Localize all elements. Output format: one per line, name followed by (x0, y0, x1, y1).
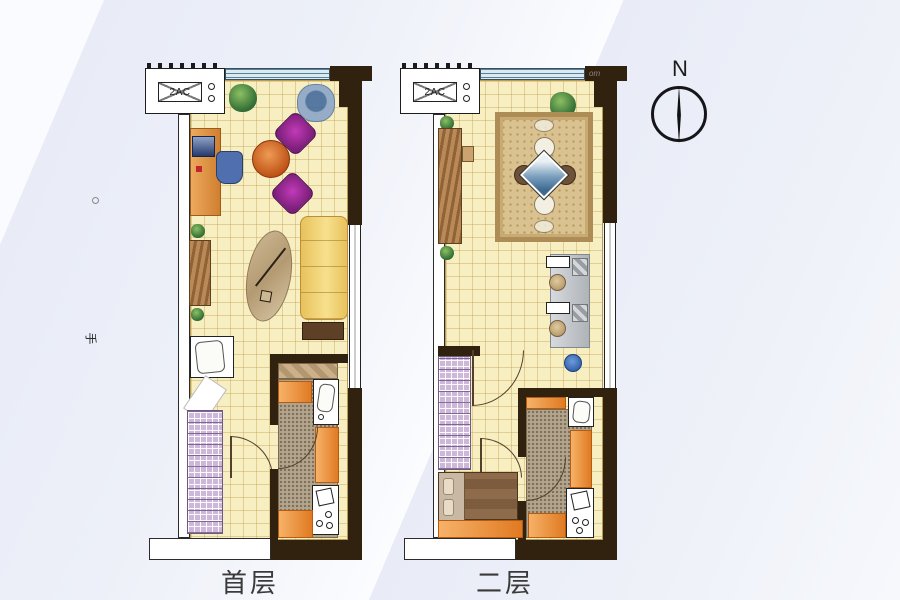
potted-plant-icon (229, 84, 257, 112)
bath-top-wall (518, 388, 603, 397)
low-cabinet (438, 520, 523, 538)
ac-unit-symbol: 2AC (413, 82, 457, 102)
ac-knob (208, 83, 215, 90)
ac-platform: 2AC (400, 68, 480, 114)
bed (438, 472, 518, 520)
bath-left-wall (518, 397, 526, 457)
lamp-base (260, 290, 273, 303)
ac-platform: 2AC (145, 68, 225, 114)
bath-left-wall (270, 469, 278, 540)
shower (278, 363, 338, 379)
washing-machine (566, 488, 594, 538)
wash-basin-cabinet (190, 336, 234, 378)
sideboard-cabinet (438, 128, 462, 244)
stove (312, 485, 339, 535)
bottom-wall (515, 540, 617, 560)
knob (572, 517, 579, 524)
margin-marker (92, 197, 99, 204)
bottom-wall (270, 540, 362, 560)
bay-window (225, 68, 330, 80)
burner (316, 520, 323, 527)
compass: N (648, 56, 712, 152)
desk-shelf (572, 258, 588, 276)
stove-pan (316, 488, 335, 507)
staircase (187, 410, 223, 534)
pillow (443, 478, 454, 495)
right-window (349, 225, 361, 388)
bookshelf-cabinet (189, 240, 211, 306)
compass-north-label: N (648, 56, 712, 82)
right-wall-upper (348, 78, 362, 225)
monitor-panel (546, 302, 570, 314)
right-wall-lower (603, 388, 617, 560)
floor-lamp (255, 248, 286, 287)
rug-motif (534, 119, 554, 132)
staircase (438, 356, 471, 470)
desk-chair (216, 151, 243, 184)
ac-knob (463, 83, 470, 90)
ac-label: 2AC (425, 87, 446, 98)
side-watermark-glyph: 手 (83, 332, 100, 344)
sink-drain (318, 414, 324, 420)
computer-monitor (192, 136, 215, 157)
counter (526, 397, 566, 409)
potted-plant-icon (191, 308, 204, 321)
right-window (604, 223, 616, 388)
counter (528, 513, 566, 538)
waste-bin (564, 354, 582, 372)
dining-table (520, 151, 568, 199)
ac-unit-symbol: 2AC (158, 82, 202, 102)
sofa (300, 216, 348, 320)
machine-lid (570, 490, 590, 510)
first-floor-label: 首层 (190, 563, 310, 593)
round-coffee-table (252, 140, 290, 178)
bathroom-sink (568, 397, 594, 427)
entry-step-platform (149, 538, 271, 560)
room-door-leaf (472, 350, 474, 406)
ac-label: 2AC (170, 87, 191, 98)
floor-plan-first: 2AC (145, 58, 375, 563)
knob (582, 519, 589, 526)
potted-plant-icon (440, 246, 454, 260)
monitor-panel (546, 256, 570, 268)
corner-armchair (297, 84, 335, 122)
right-wall-lower (348, 388, 362, 560)
sink-bowl (572, 400, 591, 424)
burner (325, 511, 332, 518)
desk-chair (549, 274, 566, 291)
kitchen-sink (313, 379, 339, 425)
floor-plan-second: 2AC om (400, 58, 630, 563)
ac-knob (463, 95, 470, 102)
cabinet-extension (462, 146, 474, 162)
wash-basin (194, 340, 225, 375)
counter (315, 427, 339, 483)
sink-bowl (316, 383, 336, 413)
knob (576, 527, 583, 534)
bay-window (480, 68, 585, 80)
desk-shelf (572, 304, 588, 322)
entry-door-leaf (230, 436, 232, 478)
dining-rug (495, 112, 593, 242)
desk-chair (549, 320, 566, 337)
counter (278, 381, 312, 403)
floor-plan-sheet: 2AC (0, 0, 900, 600)
counter (278, 510, 313, 538)
step-platform (404, 538, 516, 560)
side-table (302, 322, 344, 340)
ac-knob (208, 95, 215, 102)
watermark-text: om (589, 69, 600, 78)
potted-plant-icon (191, 224, 205, 238)
rug-motif (534, 220, 554, 233)
right-wall-upper (603, 78, 617, 223)
bath-top-wall (270, 354, 348, 363)
second-floor-label: 二层 (445, 563, 565, 593)
burner (326, 522, 333, 529)
bath-left-wall (270, 363, 278, 425)
desk-accent (196, 166, 202, 172)
counter (570, 430, 592, 488)
pillow (443, 499, 454, 516)
